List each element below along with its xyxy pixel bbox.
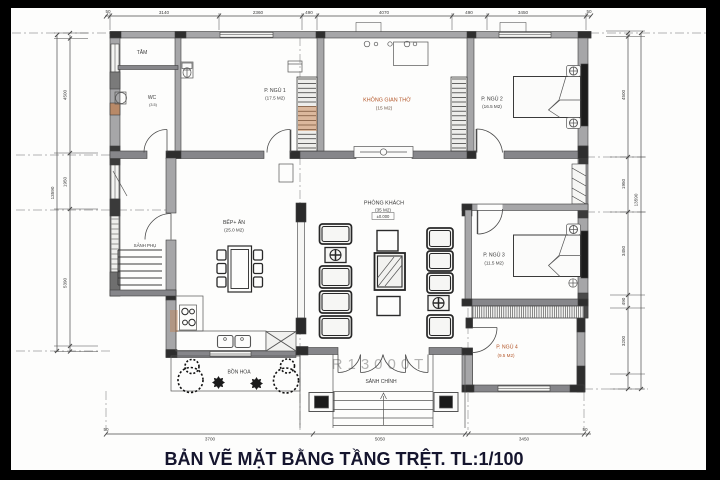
svg-text:4500: 4500 bbox=[621, 89, 626, 100]
svg-text:3450: 3450 bbox=[518, 10, 529, 15]
svg-text:P. NGỦ 1: P. NGỦ 1 bbox=[264, 87, 286, 94]
svg-text:P. NGỦ 2: P. NGỦ 2 bbox=[481, 96, 503, 103]
svg-text:3450: 3450 bbox=[621, 245, 626, 256]
svg-text:SẢNH PHỤ: SẢNH PHỤ bbox=[134, 243, 157, 248]
svg-text:5050: 5050 bbox=[375, 437, 386, 442]
svg-text:R13000T: R13000T bbox=[332, 356, 429, 373]
svg-text:BẾP+ ĂN: BẾP+ ĂN bbox=[223, 219, 245, 226]
svg-text:WC: WC bbox=[148, 95, 157, 101]
svg-text:3140: 3140 bbox=[159, 10, 170, 15]
svg-text:50: 50 bbox=[103, 427, 109, 432]
svg-text:(16.5 M2): (16.5 M2) bbox=[482, 104, 502, 109]
svg-text:3450: 3450 bbox=[519, 437, 530, 442]
svg-text:50: 50 bbox=[586, 9, 592, 14]
svg-text:490: 490 bbox=[465, 10, 473, 15]
svg-text:(3.5): (3.5) bbox=[149, 103, 158, 107]
svg-text:13590: 13590 bbox=[634, 193, 639, 206]
svg-text:P. NGỦ 3: P. NGỦ 3 bbox=[483, 252, 505, 259]
svg-text:BỒN HOA: BỒN HOA bbox=[227, 369, 251, 376]
svg-text:5390: 5390 bbox=[63, 277, 68, 288]
svg-text:P. NGỦ 4: P. NGỦ 4 bbox=[496, 344, 518, 351]
svg-text:2360: 2360 bbox=[253, 10, 264, 15]
svg-text:(15 M2): (15 M2) bbox=[376, 106, 393, 112]
svg-text:(17.5 M2): (17.5 M2) bbox=[265, 96, 285, 101]
svg-text:(11.5 M2): (11.5 M2) bbox=[484, 261, 504, 266]
svg-text:13590: 13590 bbox=[50, 186, 55, 199]
svg-text:(9.5 M2): (9.5 M2) bbox=[497, 353, 515, 358]
svg-text:50: 50 bbox=[105, 9, 111, 14]
svg-text:1950: 1950 bbox=[621, 178, 626, 189]
svg-text:TẮM: TẮM bbox=[137, 48, 148, 56]
svg-text:50: 50 bbox=[582, 427, 588, 432]
svg-text:3200: 3200 bbox=[621, 335, 626, 346]
svg-text:±0.000: ±0.000 bbox=[377, 214, 390, 219]
svg-text:3700: 3700 bbox=[205, 437, 216, 442]
svg-text:KHÔNG GIAN THỜ: KHÔNG GIAN THỜ bbox=[363, 97, 411, 104]
svg-text:490: 490 bbox=[621, 297, 626, 305]
svg-text:(35 M2): (35 M2) bbox=[375, 208, 391, 213]
svg-text:490: 490 bbox=[305, 10, 313, 15]
svg-text:4500: 4500 bbox=[63, 89, 68, 100]
svg-text:1950: 1950 bbox=[63, 176, 68, 187]
svg-text:4070: 4070 bbox=[379, 10, 390, 15]
svg-text:(25.0 M2): (25.0 M2) bbox=[224, 228, 244, 233]
svg-text:SẢNH CHÍNH: SẢNH CHÍNH bbox=[365, 378, 397, 385]
svg-text:PHÒNG KHÁCH: PHÒNG KHÁCH bbox=[364, 200, 404, 207]
